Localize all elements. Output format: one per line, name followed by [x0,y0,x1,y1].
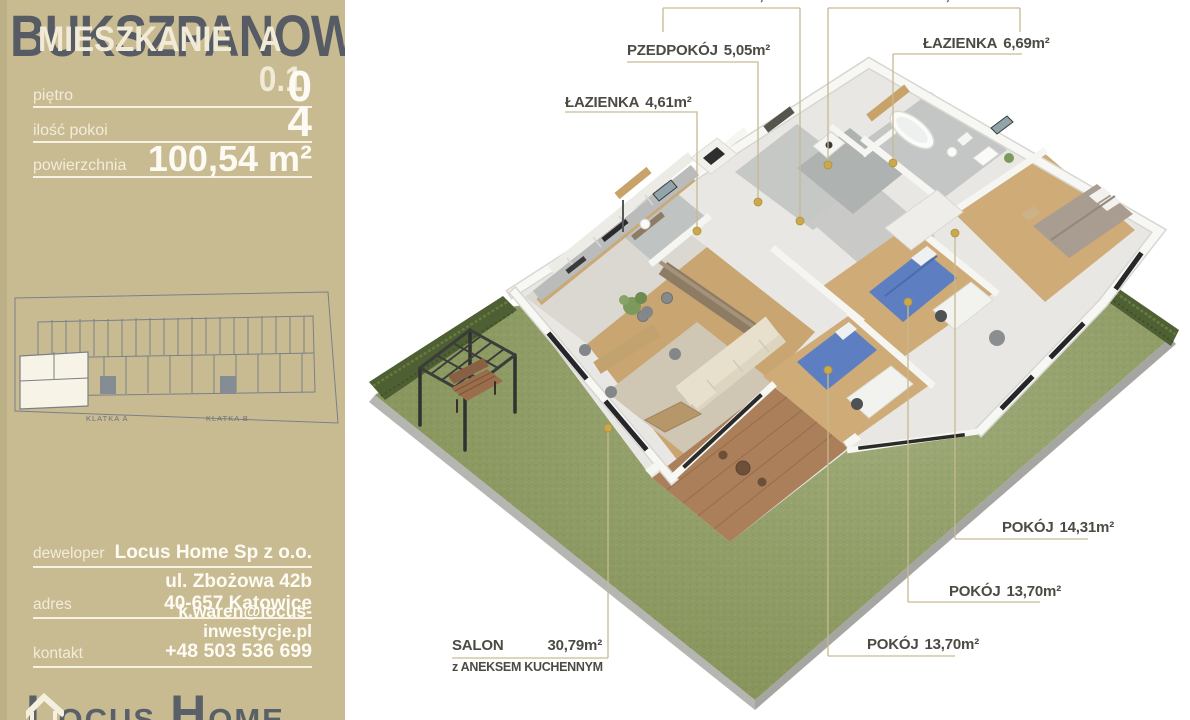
marker-korytarz [796,217,804,225]
contact-block: deweloper Locus Home Sp z o.o. adres ul.… [33,540,312,668]
address-street: ul. Zbożowa 42b [165,571,312,592]
room-label-pokoj-1370-bottom: POKÓJ13,70m² [867,636,979,654]
contact-label: adres [33,596,72,614]
room-label-korytarz: KORYTARZ9,43m² [661,0,802,5]
marker-lazienka-669 [889,159,897,167]
dining-chair [579,344,591,356]
salon-suffix: z ANEKSEM KUCHENNYM [452,658,602,676]
spec-label: piętro [33,87,73,105]
floor-plan-panel: KORYTARZ9,43m² PRALNIA2,26m² PZEDPOKÓJ5,… [345,0,1190,720]
stairwell-a [100,376,116,394]
room-label-lazienka-461: ŁAZIENKA4,61m² [565,94,692,112]
sidebar-edge-strip [0,0,7,720]
bar-stool [662,293,673,304]
highlighted-unit [20,352,88,409]
marker-pokoj-1431 [951,229,959,237]
bath-sink [640,219,650,229]
dining-chair [641,306,653,318]
patio-chair [719,451,728,460]
spec-label: ilość pokoi [33,122,108,140]
marker-lazienka-461 [693,227,701,235]
dining-chair [605,386,617,398]
spec-row-area: powierzchnia 100,54 m² [33,143,312,178]
klatka-b-label: KLATKA B [206,414,249,423]
logo-text-ocus: OCUS [59,702,157,720]
room-label-salon: SALON 30,79m² z ANEKSEM KUCHENNYM [452,637,602,676]
company-logo: L OCUS H OME [26,684,335,720]
spec-value: 100,54 m² [148,144,312,175]
logo-text-ome: OME [208,702,285,720]
sidebar: BUKSZPANOWA MIESZKANIE A 0.1 piętro 0 il… [0,0,345,720]
apartment-brochure: BUKSZPANOWA MIESZKANIE A 0.1 piętro 0 il… [0,0,1190,720]
contact-label: deweloper [33,545,105,563]
room-label-lazienka-669: ŁAZIENKA6,69m² [923,35,1050,53]
toilet [947,147,957,157]
dining-chair [669,348,681,360]
contact-row-developer: deweloper Locus Home Sp z o.o. [33,540,312,568]
room-label-pokoj-1431: POKÓJ14,31m² [1002,519,1114,537]
marker-pralnia [824,161,832,169]
room-label-pokoj-1370-middle: POKÓJ13,70m² [949,583,1061,601]
marker-pokoj-1370m [904,298,912,306]
room-label-pralnia: PRALNIA2,26m² [828,0,1022,5]
beanbag [989,330,1005,346]
marker-pokoj-1370b [824,366,832,374]
floor-plan-render [345,0,1190,720]
klatka-a-label: KLATKA A [86,414,128,423]
contact-email: k.waren@locus-inwestycje.pl [83,602,312,641]
spec-value: 4 [288,103,312,140]
office-chair [851,398,863,410]
contact-phone: +48 503 536 699 [83,641,312,663]
logo-letter-h: H [170,684,208,720]
office-chair [935,310,947,322]
logo-house-icon [26,690,64,720]
contact-label: kontakt [33,645,83,663]
marker-pzedpokoj [754,198,762,206]
plant [1004,153,1014,163]
developer-name: Locus Home Sp z o.o. [115,542,312,563]
spec-row-floor: piętro 0 [33,72,312,108]
spec-list: piętro 0 ilość pokoi 4 powierzchnia 100,… [33,72,312,178]
spec-label: powierzchnia [33,157,126,175]
marker-salon [604,424,612,432]
mirror [991,116,1013,134]
stairwell-b [220,376,236,394]
patio-table [736,461,750,475]
room-label-pzedpokoj: PZEDPOKÓJ5,05m² [627,42,770,60]
contact-row-contact: kontakt k.waren@locus-inwestycje.pl +48 … [33,619,312,668]
building-site-plan: KLATKA A KLATKA B [8,288,340,430]
patio-chair [758,478,767,487]
